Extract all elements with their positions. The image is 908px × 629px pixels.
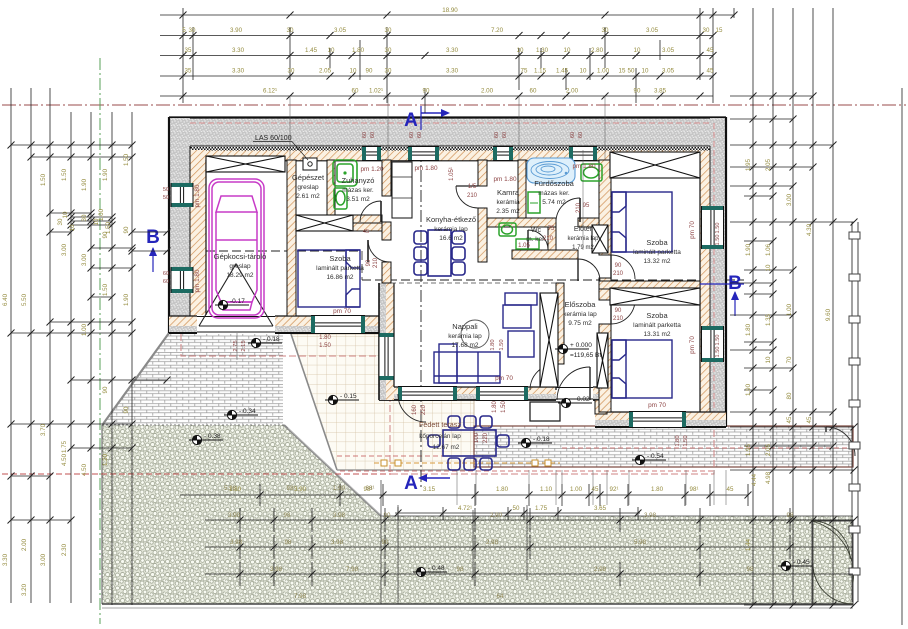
svg-text:60: 60 xyxy=(163,279,169,285)
svg-text:- 0.45: - 0.45 xyxy=(793,559,810,566)
svg-text:1.50: 1.50 xyxy=(102,283,109,296)
svg-text:4.50: 4.50 xyxy=(61,453,68,466)
svg-text:16.86 m2: 16.86 m2 xyxy=(326,274,353,281)
svg-text:1.80: 1.80 xyxy=(496,486,509,493)
svg-text:5.50: 5.50 xyxy=(21,293,28,306)
svg-text:pm 70: pm 70 xyxy=(689,336,696,354)
svg-text:1.30: 1.30 xyxy=(536,47,549,54)
svg-text:60: 60 xyxy=(530,88,537,95)
svg-text:3.05: 3.05 xyxy=(662,47,675,54)
svg-text:1.50: 1.50 xyxy=(105,221,112,234)
svg-text:1.45: 1.45 xyxy=(556,68,569,75)
svg-text:3.30: 3.30 xyxy=(2,553,9,566)
svg-text:2.00: 2.00 xyxy=(481,88,494,95)
svg-text:10: 10 xyxy=(642,68,649,75)
svg-text:210: 210 xyxy=(576,202,582,213)
svg-text:10: 10 xyxy=(69,224,76,231)
svg-text:pm 70: pm 70 xyxy=(689,221,696,239)
svg-text:1.50: 1.50 xyxy=(683,435,689,446)
svg-text:1.80: 1.80 xyxy=(651,486,664,493)
svg-text:220: 220 xyxy=(483,432,489,443)
svg-text:Szoba: Szoba xyxy=(646,238,668,247)
svg-text:3.30: 3.30 xyxy=(232,47,245,54)
svg-text:3.65: 3.65 xyxy=(594,505,607,512)
svg-text:50: 50 xyxy=(163,187,169,193)
svg-text:90: 90 xyxy=(123,226,130,233)
svg-text:60: 60 xyxy=(362,132,368,138)
svg-text:4.98: 4.98 xyxy=(765,471,772,484)
svg-text:Fedett terasz: Fedett terasz xyxy=(419,420,461,429)
svg-text:2.05: 2.05 xyxy=(765,158,772,171)
svg-text:30: 30 xyxy=(287,27,294,34)
svg-text:3.05: 3.05 xyxy=(662,68,675,75)
svg-text:Fürdőszoba: Fürdőszoba xyxy=(534,179,574,188)
svg-text:3.30: 3.30 xyxy=(232,68,245,75)
svg-text:5.98: 5.98 xyxy=(224,485,237,492)
svg-text:3.98: 3.98 xyxy=(644,512,657,519)
svg-text:90: 90 xyxy=(102,386,109,393)
svg-text:98: 98 xyxy=(787,512,794,519)
svg-text:- 0.48: - 0.48 xyxy=(428,565,445,572)
svg-text:3.00: 3.00 xyxy=(81,253,88,266)
svg-text:50: 50 xyxy=(628,68,635,75)
svg-text:95: 95 xyxy=(583,203,590,209)
svg-text:90: 90 xyxy=(615,308,622,314)
svg-text:9.60: 9.60 xyxy=(825,308,832,321)
svg-text:7.20: 7.20 xyxy=(491,27,504,34)
svg-text:- 0.38: - 0.38 xyxy=(204,433,221,440)
svg-text:15: 15 xyxy=(716,27,723,34)
svg-text:220: 220 xyxy=(421,404,427,415)
svg-text:1.75: 1.75 xyxy=(61,440,68,453)
svg-text:60: 60 xyxy=(163,271,169,277)
svg-text:-0.17: -0.17 xyxy=(230,298,245,305)
svg-text:4.72¹: 4.72¹ xyxy=(458,505,472,512)
svg-text:7.98: 7.98 xyxy=(346,566,359,573)
svg-text:16.6 m2: 16.6 m2 xyxy=(439,235,463,242)
svg-text:5: 5 xyxy=(182,27,186,34)
svg-text:pm 1.80: pm 1.80 xyxy=(194,184,201,208)
svg-text:45: 45 xyxy=(363,229,369,235)
svg-text:64: 64 xyxy=(497,593,504,600)
svg-text:greslap: greslap xyxy=(229,263,251,270)
svg-text:1.15: 1.15 xyxy=(534,68,547,75)
svg-text:45: 45 xyxy=(786,416,793,423)
svg-text:mázas ker.: mázas ker. xyxy=(538,190,570,197)
svg-text:18.29 m2: 18.29 m2 xyxy=(226,272,253,279)
svg-text:3.30: 3.30 xyxy=(446,47,459,54)
svg-text:3.90: 3.90 xyxy=(230,27,243,34)
svg-text:1.06: 1.06 xyxy=(765,243,772,256)
svg-text:+ 0.000: + 0.000 xyxy=(570,342,592,349)
svg-text:pm 70: pm 70 xyxy=(333,308,351,315)
svg-text:45: 45 xyxy=(806,416,813,423)
svg-text:2.00: 2.00 xyxy=(21,538,28,551)
svg-text:1.35: 1.35 xyxy=(765,313,772,326)
svg-text:1.90: 1.90 xyxy=(333,485,346,492)
svg-text:- 0.18: - 0.18 xyxy=(263,336,280,343)
svg-text:2.05: 2.05 xyxy=(319,68,332,75)
svg-text:1.79 m2: 1.79 m2 xyxy=(572,245,594,251)
svg-text:30: 30 xyxy=(703,27,710,34)
svg-text:13.32 m2: 13.32 m2 xyxy=(643,258,670,265)
svg-text:75: 75 xyxy=(548,226,555,232)
svg-text:30: 30 xyxy=(189,27,196,34)
svg-text:pm 1.20: pm 1.20 xyxy=(360,166,384,173)
svg-text:1.90: 1.90 xyxy=(745,243,752,256)
svg-text:2.98: 2.98 xyxy=(594,566,607,573)
svg-text:90: 90 xyxy=(615,263,622,269)
svg-text:10: 10 xyxy=(328,47,335,54)
svg-text:10: 10 xyxy=(765,264,772,271)
svg-text:Szoba: Szoba xyxy=(646,311,668,320)
svg-text:3.90: 3.90 xyxy=(294,486,307,493)
svg-text:45: 45 xyxy=(707,47,714,54)
svg-text:laminált parketta: laminált parketta xyxy=(633,249,681,256)
svg-text:laminált parketta: laminált parketta xyxy=(316,265,364,272)
svg-text:pm 1.80: pm 1.80 xyxy=(572,163,596,170)
svg-text:30: 30 xyxy=(81,214,88,221)
svg-text:60: 60 xyxy=(578,132,584,138)
svg-text:1.50: 1.50 xyxy=(715,235,721,246)
svg-text:- 0.18: - 0.18 xyxy=(533,436,550,443)
svg-text:45: 45 xyxy=(727,486,734,493)
svg-text:45: 45 xyxy=(592,486,599,493)
svg-text:30: 30 xyxy=(385,27,392,34)
svg-text:1.50: 1.50 xyxy=(715,347,721,358)
svg-text:Zuhanyzó: Zuhanyzó xyxy=(342,176,375,185)
svg-text:80: 80 xyxy=(786,392,793,399)
svg-text:2.98: 2.98 xyxy=(486,539,499,546)
svg-text:Előtér: Előtér xyxy=(574,226,593,233)
svg-text:45: 45 xyxy=(707,68,714,75)
svg-text:laminált parketta: laminált parketta xyxy=(633,322,681,329)
svg-text:9.75 m2: 9.75 m2 xyxy=(568,320,592,327)
svg-text:90: 90 xyxy=(123,406,130,413)
svg-text:1.05: 1.05 xyxy=(518,243,530,249)
svg-text:50: 50 xyxy=(163,195,169,201)
svg-text:kerámia lap: kerámia lap xyxy=(563,311,597,318)
svg-text:kőporcelán lap: kőporcelán lap xyxy=(419,433,461,440)
svg-text:90: 90 xyxy=(384,512,391,519)
svg-text:1.80: 1.80 xyxy=(675,435,681,446)
svg-text:1.50: 1.50 xyxy=(499,339,505,350)
svg-text:1.80: 1.80 xyxy=(352,47,365,54)
svg-text:1.95: 1.95 xyxy=(745,158,752,171)
svg-text:13.31 m2: 13.31 m2 xyxy=(643,331,670,338)
svg-text:1.80: 1.80 xyxy=(745,323,752,336)
svg-text:210: 210 xyxy=(543,236,554,242)
svg-text:3.00: 3.00 xyxy=(61,243,68,256)
svg-text:35: 35 xyxy=(185,68,192,75)
svg-text:Konyha-étkező: Konyha-étkező xyxy=(426,215,476,224)
svg-text:- 0.02: - 0.02 xyxy=(573,396,590,403)
svg-text:1.90: 1.90 xyxy=(81,178,88,191)
svg-text:- 0.34: - 0.34 xyxy=(239,408,256,415)
svg-text:50: 50 xyxy=(513,505,520,512)
svg-text:68¹: 68¹ xyxy=(366,485,375,492)
svg-text:30: 30 xyxy=(288,68,295,75)
svg-text:2.35 m2: 2.35 m2 xyxy=(496,208,520,215)
svg-text:1.50: 1.50 xyxy=(61,168,68,181)
svg-text:4.50: 4.50 xyxy=(81,463,88,476)
svg-text:1/5: 1/5 xyxy=(468,184,477,190)
svg-text:60: 60 xyxy=(570,132,576,138)
svg-text:1.80: 1.80 xyxy=(492,401,498,413)
svg-text:90: 90 xyxy=(382,539,389,546)
svg-text:98: 98 xyxy=(747,566,754,573)
svg-text:3.85: 3.85 xyxy=(654,88,667,95)
svg-text:1.80: 1.80 xyxy=(319,335,331,341)
svg-text:3.15: 3.15 xyxy=(423,486,436,493)
svg-text:- 0.54: - 0.54 xyxy=(647,453,664,460)
svg-text:pm 70: pm 70 xyxy=(648,402,666,409)
svg-text:2.15: 2.15 xyxy=(241,340,247,351)
svg-text:kerámia lap: kerámia lap xyxy=(448,333,482,340)
svg-text:10: 10 xyxy=(765,356,772,363)
svg-text:210: 210 xyxy=(613,316,624,322)
svg-text:90: 90 xyxy=(366,259,372,266)
svg-text:1.50: 1.50 xyxy=(715,335,721,346)
svg-text:90: 90 xyxy=(634,88,641,95)
svg-text:kerámia lap: kerámia lap xyxy=(567,236,599,242)
svg-text:1.50: 1.50 xyxy=(40,173,47,186)
svg-text:1.90: 1.90 xyxy=(123,293,130,306)
svg-text:1.50: 1.50 xyxy=(123,153,130,166)
svg-text:98¹: 98¹ xyxy=(287,485,296,492)
svg-text:A: A xyxy=(404,110,418,131)
svg-text:100: 100 xyxy=(474,432,480,443)
svg-text:60: 60 xyxy=(494,132,500,138)
svg-text:pm 1.80: pm 1.80 xyxy=(414,165,438,172)
svg-text:3.30: 3.30 xyxy=(446,68,459,75)
svg-text:2.80: 2.80 xyxy=(591,47,604,54)
svg-text:3.70: 3.70 xyxy=(40,423,47,436)
svg-text:Gépkocsi-tároló: Gépkocsi-tároló xyxy=(214,252,267,261)
svg-text:3.90: 3.90 xyxy=(228,512,241,519)
svg-text:60: 60 xyxy=(370,132,376,138)
svg-text:1.90: 1.90 xyxy=(102,168,109,181)
svg-text:210: 210 xyxy=(373,257,379,268)
svg-text:17.68 m2: 17.68 m2 xyxy=(451,342,478,349)
svg-text:35: 35 xyxy=(185,47,192,54)
svg-text:60: 60 xyxy=(409,132,415,138)
svg-text:1.50: 1.50 xyxy=(501,401,507,413)
svg-text:210: 210 xyxy=(613,271,624,277)
svg-text:1.00: 1.00 xyxy=(98,208,105,221)
svg-text:mázas ker.: mázas ker. xyxy=(342,187,374,194)
svg-text:3.05: 3.05 xyxy=(334,27,347,34)
svg-text:10: 10 xyxy=(564,47,571,54)
svg-text:Gépészet: Gépészet xyxy=(292,173,325,182)
svg-text:2.00: 2.00 xyxy=(566,88,579,95)
svg-text:1.50: 1.50 xyxy=(715,223,721,234)
svg-text:98: 98 xyxy=(284,512,291,519)
svg-text:A: A xyxy=(404,473,418,494)
svg-text:3.98: 3.98 xyxy=(230,539,243,546)
svg-text:2.30: 2.30 xyxy=(61,543,68,556)
svg-text:4.44: 4.44 xyxy=(751,473,758,486)
svg-text:2.75: 2.75 xyxy=(233,340,239,351)
svg-text:pm 70: pm 70 xyxy=(495,375,513,382)
svg-text:kerámia lap: kerámia lap xyxy=(434,226,468,233)
svg-text:3.20: 3.20 xyxy=(21,583,28,596)
svg-text:5.98: 5.98 xyxy=(634,539,647,546)
svg-text:6.12¹: 6.12¹ xyxy=(263,88,277,95)
svg-text:15: 15 xyxy=(619,68,626,75)
svg-text:5.74 m2: 5.74 m2 xyxy=(542,199,566,206)
svg-text:4.30: 4.30 xyxy=(806,223,813,236)
svg-text:12.67 m2: 12.67 m2 xyxy=(433,444,460,451)
svg-text:92¹: 92¹ xyxy=(610,486,619,493)
svg-text:3.00: 3.00 xyxy=(40,553,47,566)
svg-text:1.80: 1.80 xyxy=(490,339,496,350)
svg-text:1.75: 1.75 xyxy=(535,505,548,512)
svg-text:90: 90 xyxy=(423,88,430,95)
svg-text:Nappali: Nappali xyxy=(452,322,478,331)
svg-text:98: 98 xyxy=(457,566,464,573)
svg-text:pm 1.80: pm 1.80 xyxy=(493,176,517,183)
svg-text:30: 30 xyxy=(385,47,392,54)
svg-text:Előszoba: Előszoba xyxy=(565,300,597,309)
svg-text:210: 210 xyxy=(467,193,478,199)
svg-text:1.20: 1.20 xyxy=(102,453,109,466)
svg-text:B: B xyxy=(146,227,160,248)
svg-text:1.50: 1.50 xyxy=(319,343,331,349)
svg-text:2.05: 2.05 xyxy=(765,443,772,456)
svg-text:98¹: 98¹ xyxy=(690,486,699,493)
svg-text:98: 98 xyxy=(285,539,292,546)
svg-text:60: 60 xyxy=(417,132,423,138)
svg-text:pm 1.80: pm 1.80 xyxy=(194,269,201,293)
svg-text:1.05¹: 1.05¹ xyxy=(449,167,455,181)
svg-text:2.61 m2: 2.61 m2 xyxy=(296,193,320,200)
svg-text:3.05: 3.05 xyxy=(646,27,659,34)
svg-text:2.90: 2.90 xyxy=(490,512,503,519)
svg-text:3.51 m2: 3.51 m2 xyxy=(346,196,370,203)
svg-text:1.00: 1.00 xyxy=(570,486,583,493)
svg-text:75: 75 xyxy=(521,68,528,75)
svg-text:70: 70 xyxy=(786,356,793,363)
svg-text:10: 10 xyxy=(62,211,69,218)
svg-text:kerámia: kerámia xyxy=(496,199,520,206)
svg-text:LAS 60/100: LAS 60/100 xyxy=(255,135,292,142)
svg-text:Kamra: Kamra xyxy=(497,188,520,197)
svg-text:160: 160 xyxy=(412,404,418,415)
svg-text:Wc: Wc xyxy=(531,227,542,234)
svg-text:18.90: 18.90 xyxy=(442,7,458,14)
svg-text:30: 30 xyxy=(602,27,609,34)
svg-text:3.98: 3.98 xyxy=(333,512,346,519)
svg-text:1.10: 1.10 xyxy=(540,486,553,493)
svg-text:10: 10 xyxy=(517,47,524,54)
svg-text:10: 10 xyxy=(580,68,587,75)
svg-text:1.45: 1.45 xyxy=(305,47,318,54)
svg-text:90: 90 xyxy=(366,68,373,75)
svg-text:7.98: 7.98 xyxy=(294,593,307,600)
svg-text:3.98: 3.98 xyxy=(270,566,283,573)
svg-text:1.00: 1.00 xyxy=(81,323,88,336)
svg-text:3.98: 3.98 xyxy=(331,539,344,546)
svg-text:1.00: 1.00 xyxy=(786,303,793,316)
svg-text:30: 30 xyxy=(385,68,392,75)
svg-text:60: 60 xyxy=(502,132,508,138)
svg-text:1.02¹: 1.02¹ xyxy=(369,88,383,95)
svg-text:60: 60 xyxy=(352,88,359,95)
svg-text:10: 10 xyxy=(634,47,641,54)
svg-text:greslap: greslap xyxy=(297,184,319,191)
svg-text:Szoba: Szoba xyxy=(329,254,351,263)
svg-text:3.00: 3.00 xyxy=(786,193,793,206)
svg-text:1.90: 1.90 xyxy=(745,383,752,396)
svg-text:10: 10 xyxy=(350,68,357,75)
svg-text:1.95: 1.95 xyxy=(745,443,752,456)
svg-text:=119,65 Bf: =119,65 Bf xyxy=(570,352,601,359)
svg-text:6.40: 6.40 xyxy=(2,293,9,306)
svg-text:1.00: 1.00 xyxy=(597,68,610,75)
svg-text:- 0.15: - 0.15 xyxy=(340,393,357,400)
svg-text:1.44: 1.44 xyxy=(745,538,752,551)
